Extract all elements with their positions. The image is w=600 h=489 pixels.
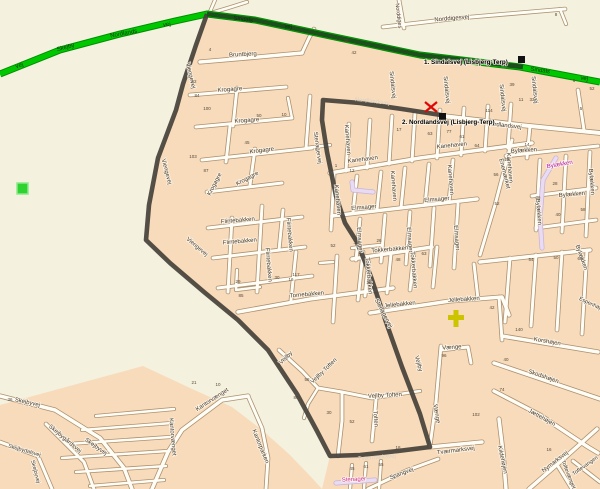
house-number: 29 (235, 279, 241, 284)
house-number: 26 (376, 238, 382, 243)
house-number: 8 (555, 12, 558, 17)
house-number: 63 (427, 131, 433, 136)
house-number: 84 (194, 93, 200, 98)
house-number: 52 (330, 243, 336, 248)
house-number: 16 (546, 447, 552, 452)
house-number: 77 (446, 129, 452, 134)
house-number: 100 (203, 106, 211, 111)
house-number: 80 (293, 395, 299, 400)
house-number: 50 (256, 113, 262, 118)
house-number: 114 (485, 108, 493, 113)
house-number: 61 (459, 134, 465, 139)
house-number: 21 (191, 380, 197, 385)
house-number: 60 (577, 256, 583, 261)
house-number: 16 (288, 277, 294, 282)
house-number: 36 (353, 240, 359, 245)
house-number: 54 (528, 257, 534, 262)
house-number: 63 (421, 251, 427, 256)
house-number: 40 (503, 357, 509, 362)
house-number: 30 (274, 275, 280, 280)
house-number: 58 (580, 207, 586, 212)
house-number: 10 (281, 112, 287, 117)
house-number: 62 (191, 79, 197, 84)
highway-label: vej (284, 24, 292, 31)
house-number: 30 (326, 410, 332, 415)
house-number: 12 (349, 168, 355, 173)
house-number: 103 (189, 154, 197, 159)
map-canvas[interactable]: NorddigesNorddigesvejBruntbjergKrogagreK… (0, 0, 600, 489)
house-number: 74 (499, 387, 505, 392)
house-number: 64 (474, 143, 480, 148)
highway-label: vej (580, 76, 588, 83)
route-stop-label-1: 1. Sindalsvej (Lisbjerg-Terp) (424, 59, 508, 66)
house-number: 140 (515, 327, 523, 332)
house-number: 14 (524, 142, 530, 147)
house-number: 48 (395, 257, 401, 262)
house-number: 33 (529, 97, 535, 102)
house-number: 45 (244, 140, 250, 145)
house-number: 61 (363, 464, 369, 469)
house-number: 39 (509, 82, 515, 87)
street-label: Stenager (342, 476, 367, 483)
road (383, 9, 565, 27)
highway-label: Nordlands (110, 28, 138, 39)
house-number: 18 (395, 445, 401, 450)
house-number: 42 (489, 305, 495, 310)
church-icon (448, 315, 464, 320)
house-number: 96 (441, 353, 447, 358)
house-number: 56 (493, 172, 499, 177)
house-number: 36 (535, 195, 541, 200)
map-viewport[interactable]: NorddigesNorddigesvejBruntbjergKrogagreK… (0, 0, 600, 489)
house-number: 102 (472, 412, 480, 417)
highway-label: vej (163, 22, 171, 29)
route-stop-label-2: 2. Nordlandsvej (Lisbjerg-Terp) (402, 119, 495, 126)
road (320, 262, 333, 263)
house-number: 40 (555, 212, 561, 217)
street-label: Norddigesvej (434, 14, 469, 23)
house-number: 85 (238, 293, 244, 298)
house-number: 58 (304, 377, 310, 382)
house-number: 42 (351, 50, 357, 55)
house-number: 36 (343, 38, 349, 43)
house-number: 55 (378, 462, 384, 467)
house-number: 11 (519, 97, 524, 102)
house-number: 50 (553, 255, 559, 260)
house-number: 28 (552, 181, 558, 186)
route-stop-marker-1 (518, 56, 525, 63)
house-number: 17 (396, 127, 402, 132)
house-number: 10 (215, 382, 221, 387)
house-number: 87 (203, 168, 209, 173)
house-number: 52 (349, 419, 355, 424)
house-number: 45 (349, 466, 355, 471)
house-number: 117 (292, 272, 300, 277)
house-number: 36 (7, 397, 13, 402)
house-number: 52 (589, 86, 595, 91)
road (211, 2, 247, 13)
green-square-marker (17, 183, 28, 194)
house-number: 52 (494, 201, 500, 206)
house-number: 22 (504, 157, 510, 162)
house-number: 25 (366, 280, 372, 285)
